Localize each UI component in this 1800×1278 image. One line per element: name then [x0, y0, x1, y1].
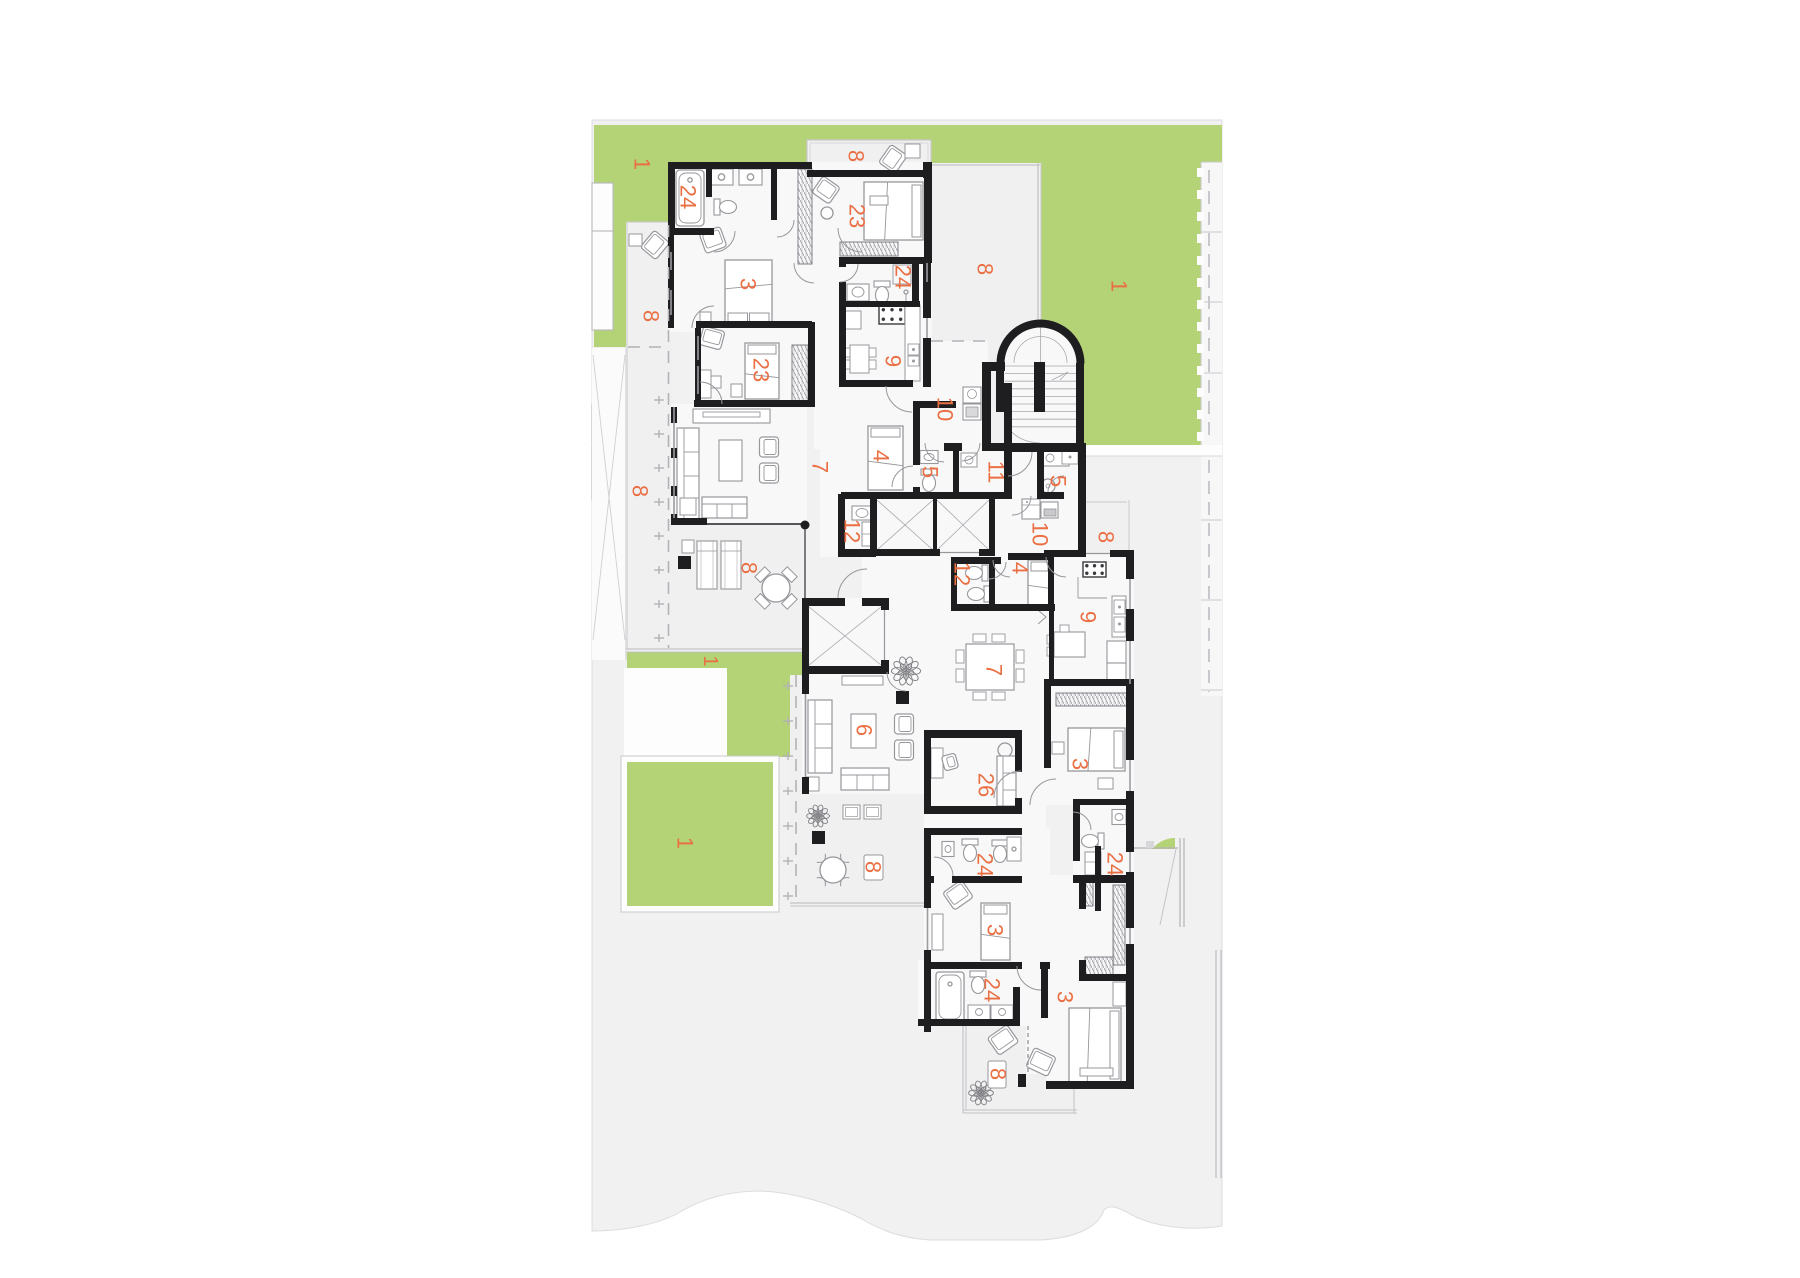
svg-text:9: 9	[881, 355, 906, 367]
svg-text:3: 3	[1053, 991, 1078, 1003]
svg-text:1: 1	[699, 655, 721, 666]
svg-text:24: 24	[973, 853, 998, 877]
svg-text:1: 1	[1107, 280, 1132, 292]
svg-text:26: 26	[974, 773, 999, 797]
svg-text:24: 24	[676, 185, 701, 209]
svg-text:7: 7	[808, 461, 833, 473]
svg-text:24: 24	[891, 265, 916, 289]
svg-text:9: 9	[1076, 611, 1101, 623]
svg-text:11: 11	[984, 461, 1009, 484]
svg-text:4: 4	[1008, 562, 1033, 574]
svg-text:4: 4	[869, 450, 894, 462]
svg-text:1: 1	[630, 158, 655, 170]
svg-text:8: 8	[986, 1068, 1011, 1080]
svg-text:1: 1	[673, 837, 698, 849]
svg-text:5: 5	[918, 466, 943, 478]
svg-text:8: 8	[844, 150, 869, 162]
svg-text:24: 24	[980, 978, 1005, 1002]
svg-text:3: 3	[983, 924, 1008, 936]
svg-text:8: 8	[861, 861, 886, 873]
svg-text:24: 24	[1103, 852, 1128, 876]
svg-text:8: 8	[628, 485, 653, 497]
svg-text:12: 12	[840, 519, 865, 543]
svg-text:10: 10	[933, 397, 958, 421]
svg-text:7: 7	[982, 664, 1007, 676]
svg-text:5: 5	[1046, 475, 1071, 487]
svg-text:3: 3	[736, 278, 761, 290]
svg-text:3: 3	[1068, 758, 1093, 770]
svg-text:8: 8	[639, 310, 664, 322]
svg-text:6: 6	[852, 724, 877, 736]
svg-text:8: 8	[973, 263, 998, 275]
svg-text:8: 8	[737, 562, 762, 574]
svg-text:23: 23	[749, 358, 774, 382]
svg-text:12: 12	[950, 562, 975, 586]
svg-text:10: 10	[1028, 522, 1053, 546]
svg-text:8: 8	[1094, 531, 1119, 543]
svg-text:23: 23	[845, 204, 870, 228]
